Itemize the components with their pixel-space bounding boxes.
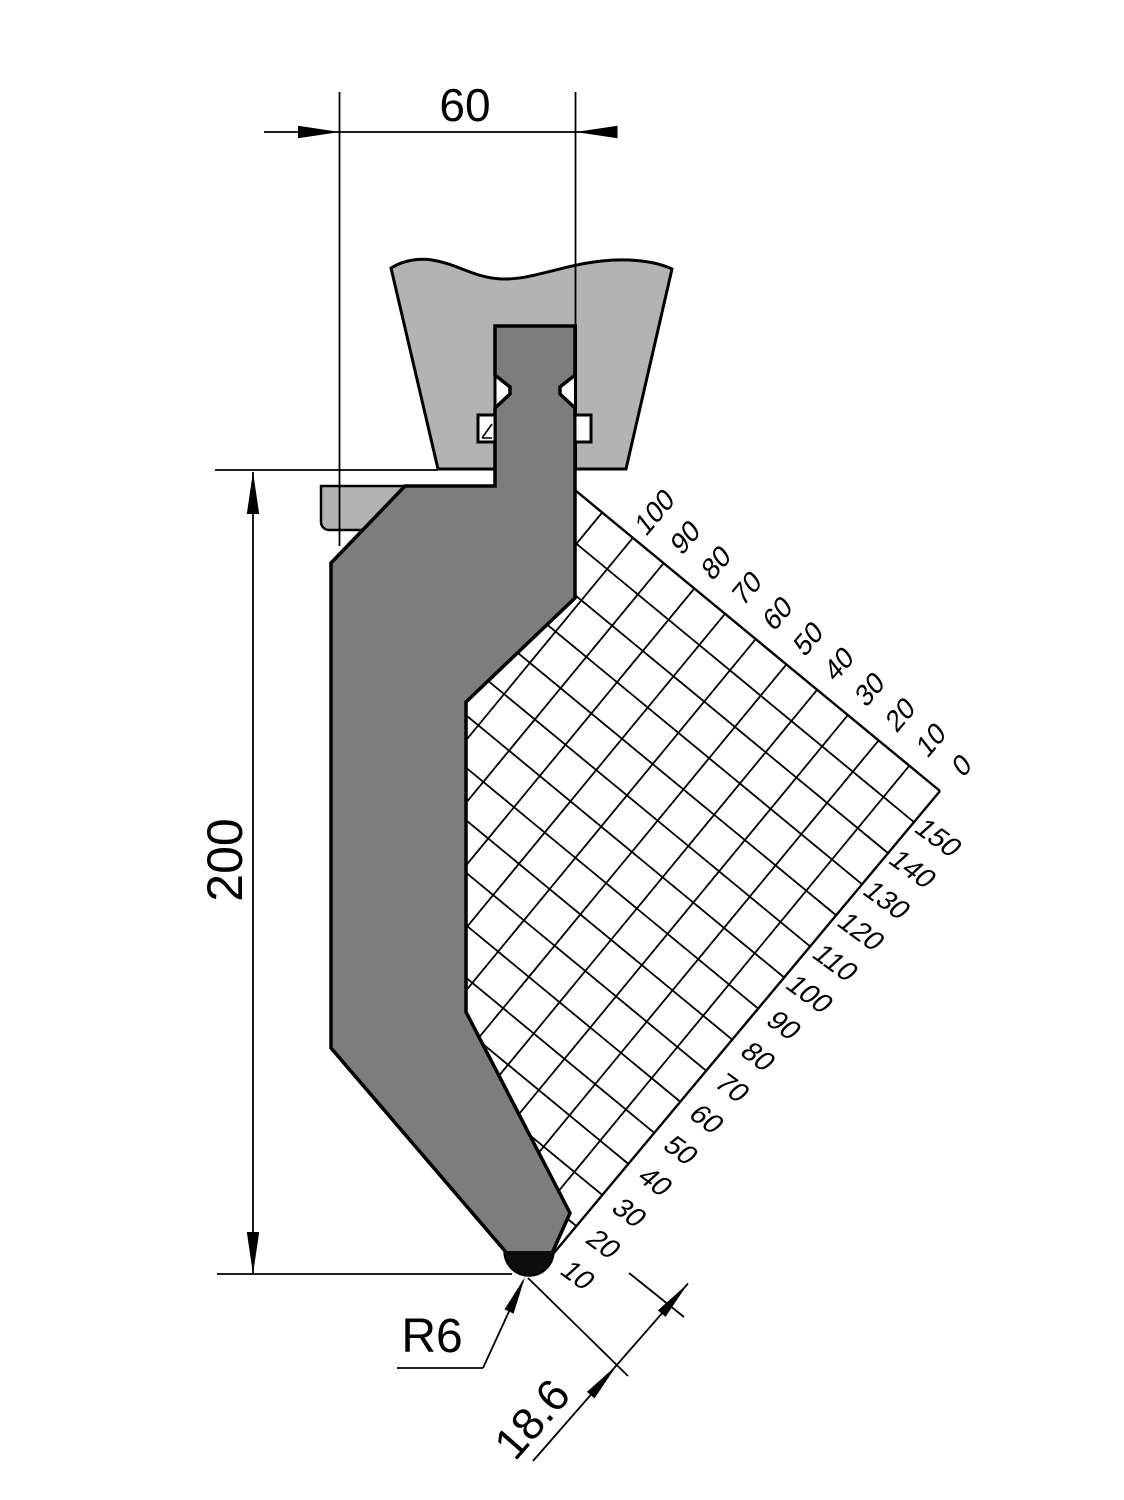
svg-text:20: 20	[579, 1224, 628, 1264]
svg-text:10: 10	[554, 1255, 603, 1295]
svg-text:50: 50	[657, 1130, 706, 1170]
svg-text:50: 50	[788, 614, 828, 663]
svg-text:18.6: 18.6	[484, 1369, 580, 1469]
svg-text:60: 60	[682, 1099, 731, 1139]
svg-text:20: 20	[880, 689, 920, 738]
svg-text:70: 70	[708, 1068, 757, 1108]
svg-text:90: 90	[665, 512, 705, 561]
svg-text:70: 70	[727, 563, 767, 612]
svg-text:30: 30	[850, 664, 890, 713]
svg-text:10: 10	[911, 715, 951, 764]
svg-text:0: 0	[947, 746, 977, 783]
svg-text:90: 90	[760, 1005, 809, 1045]
svg-text:80: 80	[696, 538, 736, 587]
svg-text:60: 60	[439, 79, 490, 131]
svg-text:40: 40	[631, 1161, 680, 1201]
svg-text:R6: R6	[401, 1310, 462, 1363]
svg-text:30: 30	[605, 1193, 654, 1233]
svg-text:60: 60	[757, 588, 797, 637]
svg-text:80: 80	[734, 1036, 783, 1076]
svg-text:200: 200	[197, 818, 253, 901]
svg-text:40: 40	[819, 639, 859, 688]
